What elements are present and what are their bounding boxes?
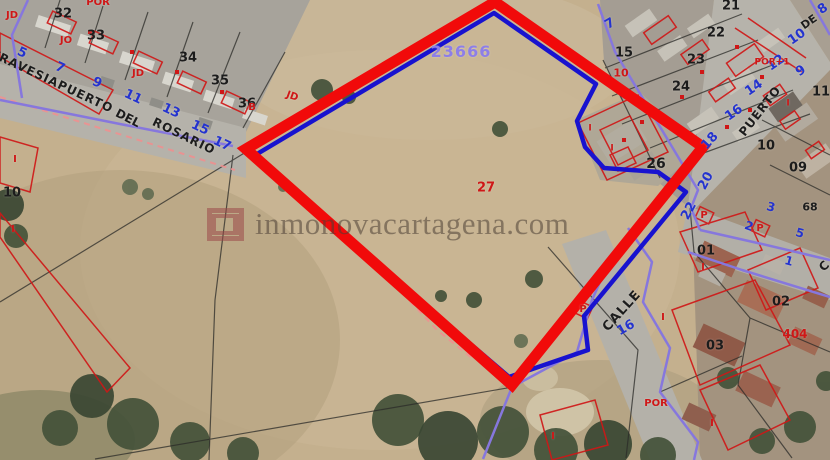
map-label-27: 27	[477, 182, 495, 195]
map-label-20: 20	[696, 170, 716, 192]
map-label-c: C	[817, 259, 830, 274]
map-label-11: 11	[812, 86, 830, 99]
map-label-24: 24	[672, 81, 690, 94]
map-label-p: P	[756, 224, 763, 234]
map-label-2: 2	[743, 219, 755, 233]
map-label-10: 10	[613, 68, 628, 79]
map-label-26: 26	[646, 157, 665, 171]
map-label-i: I	[661, 313, 665, 323]
map-label-p: P	[700, 211, 707, 221]
map-label-32: 32	[54, 8, 72, 21]
map-label-p: P	[579, 305, 586, 315]
map-label-del: DEL	[114, 107, 142, 129]
map-label-5: 5	[794, 226, 805, 240]
map-label-9: 9	[90, 75, 104, 91]
map-label-por-1: POR+1	[755, 59, 790, 68]
map-label-8: 8	[816, 1, 830, 17]
map-label-5: 5	[15, 45, 29, 61]
map-label-9: 9	[794, 63, 809, 79]
cadastral-satellite-map: TRAVESIAPUERTODELROSARIOPUERTODECALLEC23…	[0, 0, 830, 460]
map-label-i: I	[13, 155, 17, 165]
map-label-09: 09	[789, 162, 807, 175]
map-label-1: 1	[783, 254, 794, 268]
map-label-21: 21	[722, 0, 740, 13]
map-label-10: 10	[3, 187, 21, 200]
map-label-01: 01	[697, 245, 715, 258]
map-label-i: I	[710, 419, 714, 429]
map-label-16: 16	[723, 102, 745, 123]
map-label-23: 23	[687, 54, 705, 67]
map-label-68: 68	[802, 202, 817, 213]
map-label-22: 22	[707, 27, 725, 40]
map-label-jd: JD	[6, 11, 18, 21]
map-label-15: 15	[615, 47, 633, 60]
map-label-22: 22	[679, 200, 699, 222]
map-label-jd: JD	[285, 90, 300, 104]
map-label-por: POR	[86, 0, 110, 8]
map-label-por: POR	[644, 399, 668, 409]
map-label-i: I	[588, 125, 591, 134]
map-label-jd: JD	[132, 69, 144, 79]
map-label-404: 404	[782, 328, 807, 340]
map-label-33: 33	[87, 30, 105, 43]
map-label-10: 10	[757, 140, 775, 153]
map-label-35: 35	[211, 75, 229, 88]
map-label-3: 3	[765, 200, 776, 214]
map-label-i: I	[551, 432, 555, 442]
map-label-i: I	[11, 225, 15, 235]
map-label-02: 02	[772, 296, 790, 309]
map-label-b: B	[248, 103, 256, 113]
map-label-34: 34	[179, 52, 197, 65]
map-labels-layer: TRAVESIAPUERTODELROSARIOPUERTODECALLEC23…	[0, 0, 830, 460]
map-label-23666: 23666	[431, 44, 492, 60]
map-label-jo: JO	[60, 36, 72, 46]
map-label-i: I	[701, 263, 705, 273]
map-label-03: 03	[706, 340, 724, 353]
map-label-18: 18	[699, 130, 721, 152]
map-label-rosario: ROSARIO	[151, 116, 218, 157]
map-label-11: 11	[122, 87, 144, 106]
map-label-7: 7	[603, 16, 617, 32]
map-label-i: I	[786, 100, 789, 109]
map-label-7: 7	[53, 60, 67, 76]
map-label-i: I	[610, 145, 613, 154]
